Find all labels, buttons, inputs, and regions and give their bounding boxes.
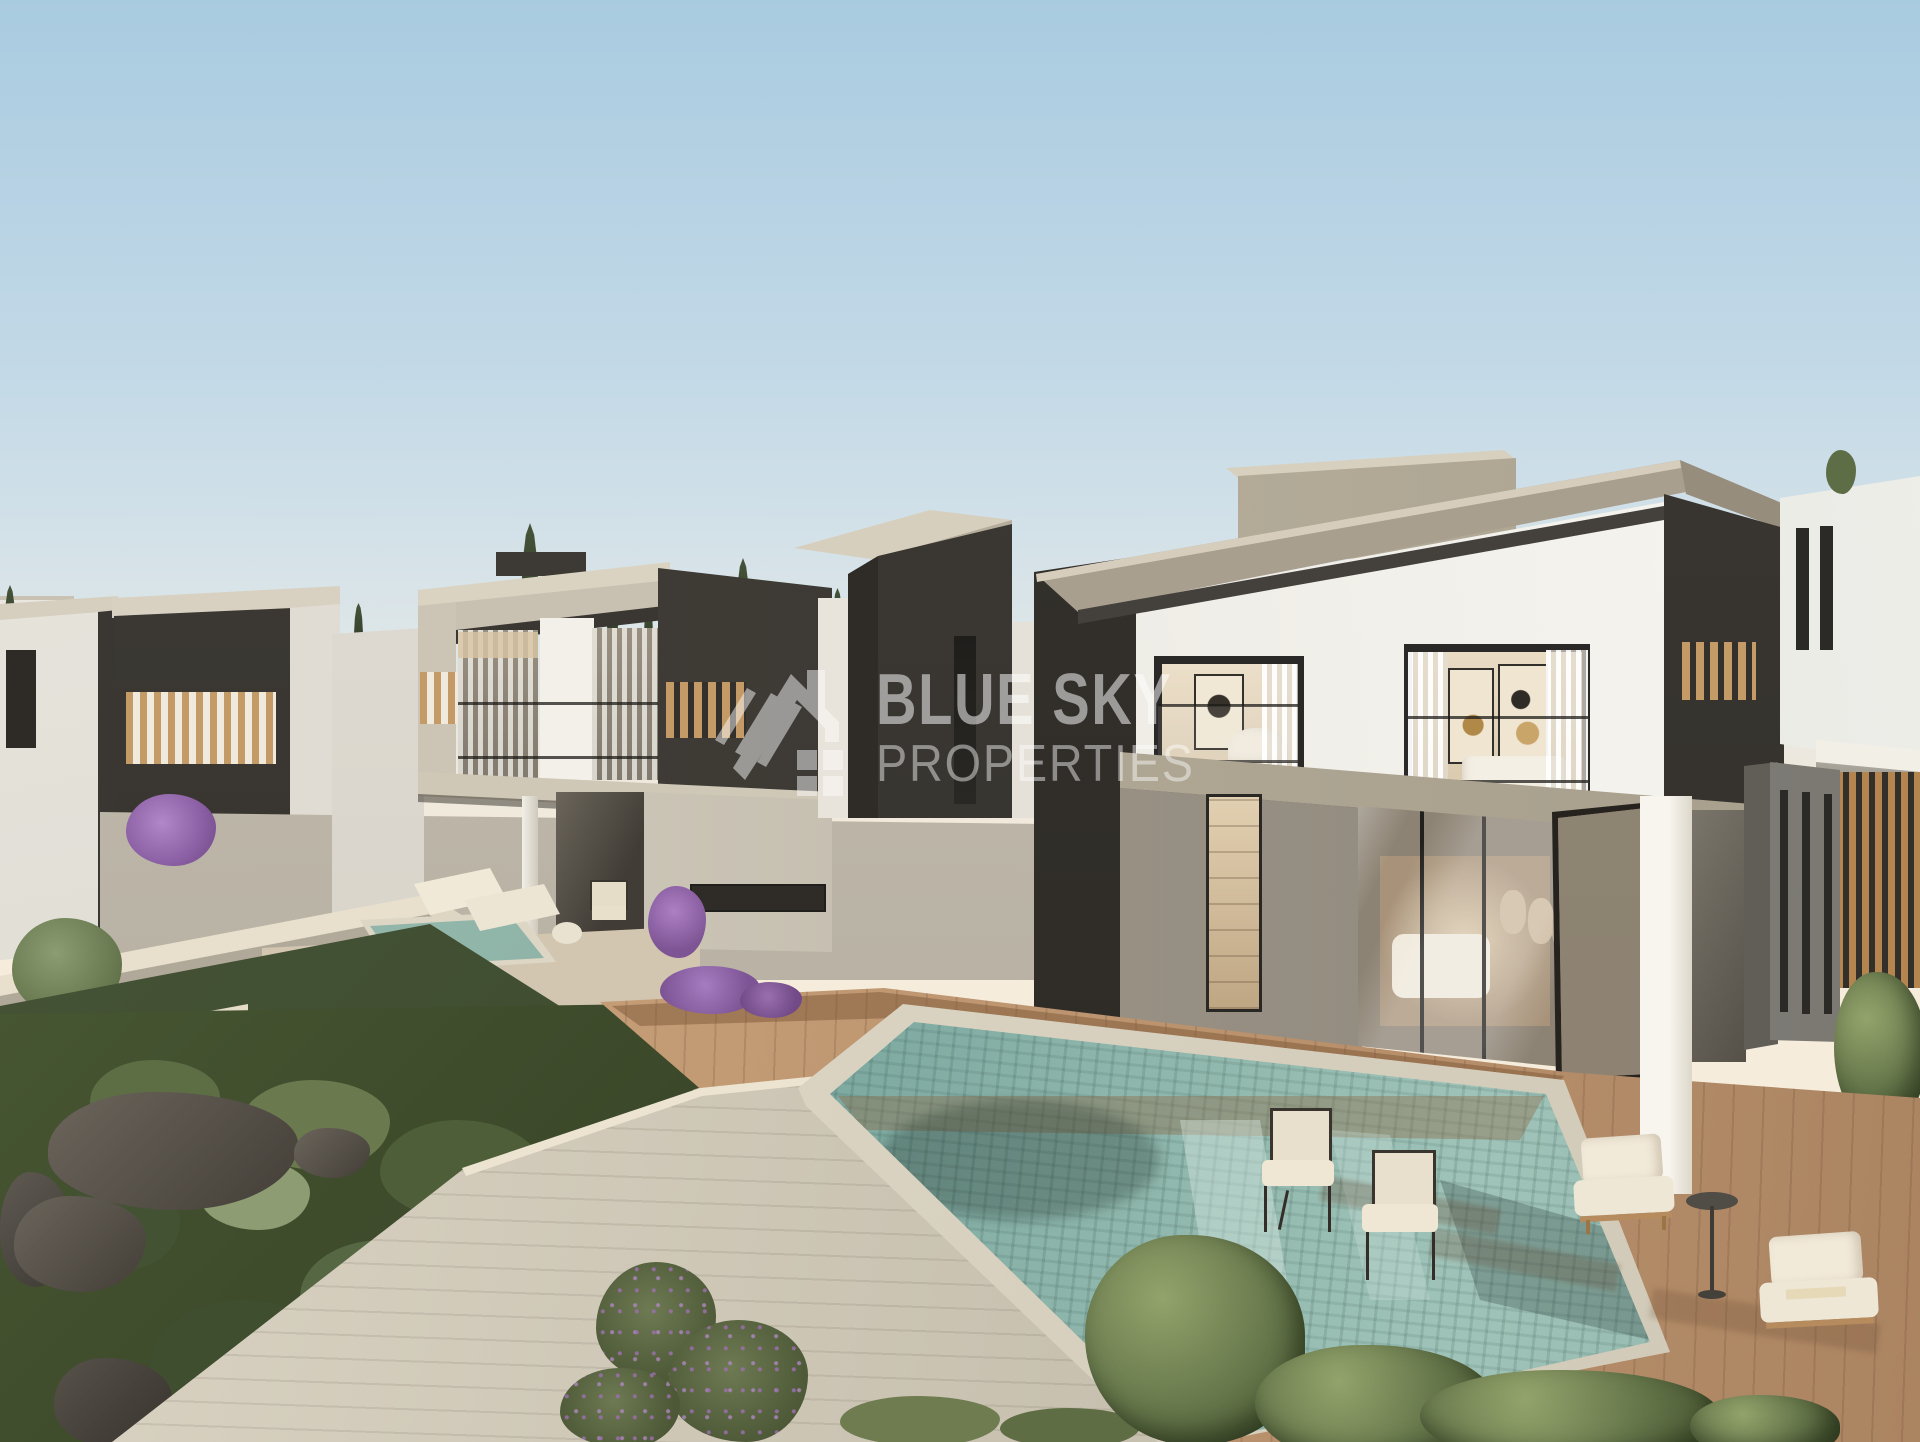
chair-seat xyxy=(592,906,626,920)
chair-leg xyxy=(1366,1232,1369,1280)
watermark-title: BLUE SKY xyxy=(876,664,1172,736)
wicker-chair xyxy=(1352,1140,1452,1286)
wall-art xyxy=(1498,664,1548,764)
table-base xyxy=(1698,1290,1726,1299)
lounge-chair xyxy=(1756,1218,1890,1342)
lounge-chair xyxy=(1570,1120,1682,1236)
window-slit xyxy=(1820,526,1833,650)
chair-leg xyxy=(1278,1190,1289,1230)
lavender xyxy=(668,1320,808,1442)
watermark-subtitle: PROPERTIES xyxy=(876,738,1195,790)
watermark: BLUE SKY PROPERTIES xyxy=(712,662,1182,802)
wood-slat-band xyxy=(1682,642,1756,700)
lounger-cushion xyxy=(1759,1277,1879,1323)
chair-leg xyxy=(1432,1232,1435,1280)
wood-slat-band xyxy=(420,672,458,724)
window-slit xyxy=(1780,790,1788,1012)
balustrade-rail xyxy=(458,756,664,759)
window-glow xyxy=(458,632,538,658)
chair-back xyxy=(1372,1150,1436,1210)
balustrade-rail xyxy=(458,702,664,705)
roof-plant xyxy=(1826,450,1856,494)
roof-box xyxy=(496,552,586,576)
wood-slat-band xyxy=(126,692,276,764)
lavender xyxy=(560,1368,680,1442)
window-slit xyxy=(1824,794,1832,1014)
lounger-leg xyxy=(1586,1220,1590,1234)
lounger-leg xyxy=(1662,1216,1666,1230)
architectural-render: BLUE SKY PROPERTIES xyxy=(0,0,1920,1442)
window-slit xyxy=(1802,792,1810,1014)
chair-leg xyxy=(1264,1186,1267,1232)
pouf xyxy=(552,922,582,944)
window xyxy=(690,884,826,912)
chair-leg xyxy=(1328,1186,1331,1232)
window-slit xyxy=(1796,528,1809,650)
grass-tuft xyxy=(840,1396,1000,1442)
glass-side xyxy=(1692,810,1746,1062)
pergola-slat-screen xyxy=(1836,772,1920,988)
window xyxy=(6,650,36,748)
side-table xyxy=(1686,1192,1738,1304)
lounger-cushion xyxy=(1573,1175,1675,1216)
house-logo-icon xyxy=(712,662,854,802)
balustrade-rail xyxy=(1408,716,1588,719)
chair-back xyxy=(1270,1108,1332,1166)
chair-seat xyxy=(1262,1160,1334,1186)
kitchen-window xyxy=(1206,794,1262,1012)
wicker-chair xyxy=(1252,1098,1348,1238)
chair-seat xyxy=(1362,1204,1438,1232)
bougainvillea xyxy=(126,794,216,866)
bougainvillea xyxy=(740,982,802,1018)
bougainvillea xyxy=(648,886,706,958)
table-stem xyxy=(1710,1206,1714,1292)
